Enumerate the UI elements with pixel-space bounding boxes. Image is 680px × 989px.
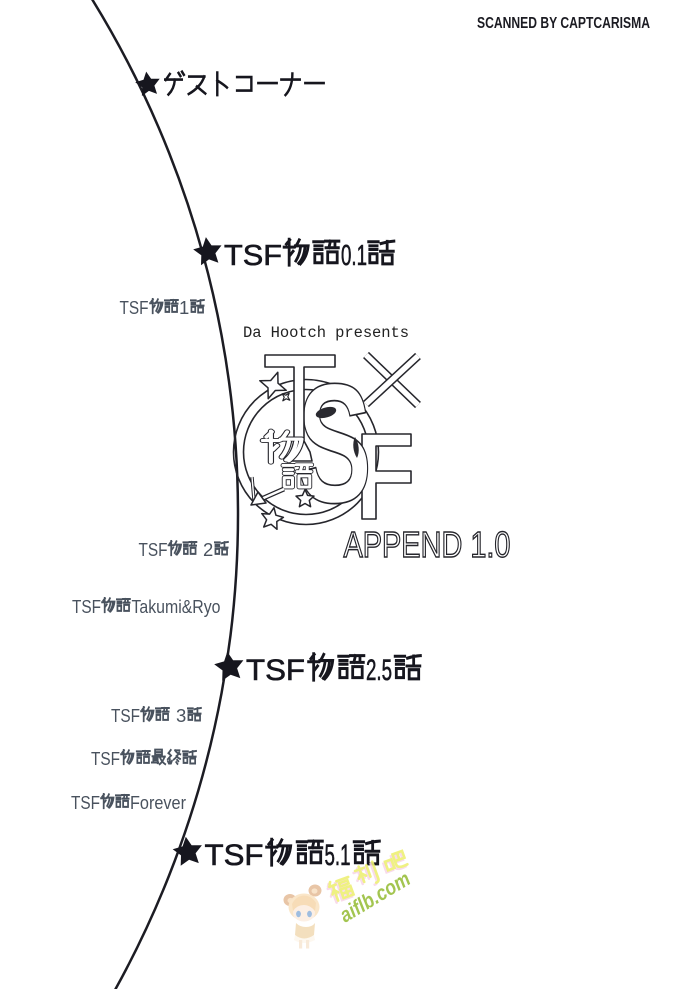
- svg-text:TSF: TSF: [120, 297, 149, 318]
- svg-text:0.1: 0.1: [341, 240, 367, 272]
- svg-text:TSF: TSF: [72, 596, 101, 617]
- svg-text:Da Hootch presents: Da Hootch presents: [243, 324, 409, 342]
- svg-text:APPEND 1.0: APPEND 1.0: [344, 524, 511, 565]
- svg-text:SCANNED BY CAPTCARISMA: SCANNED BY CAPTCARISMA: [477, 15, 650, 32]
- svg-text:TSF: TSF: [246, 654, 305, 687]
- svg-text:TSF: TSF: [205, 839, 264, 872]
- svg-text:3: 3: [176, 705, 186, 726]
- svg-text:S: S: [297, 349, 372, 539]
- svg-text:2.5: 2.5: [366, 654, 392, 687]
- svg-text:2: 2: [203, 539, 213, 560]
- svg-text:Takumi&Ryo: Takumi&Ryo: [132, 596, 221, 617]
- svg-text:5.1: 5.1: [325, 839, 351, 872]
- svg-text:TSF: TSF: [139, 539, 168, 560]
- svg-text:TSF: TSF: [224, 240, 282, 272]
- svg-text:Forever: Forever: [130, 792, 186, 813]
- svg-text:1: 1: [179, 297, 189, 318]
- svg-text:TSF: TSF: [71, 792, 100, 813]
- svg-text:TSF: TSF: [111, 705, 140, 726]
- svg-text:TSF: TSF: [91, 748, 120, 769]
